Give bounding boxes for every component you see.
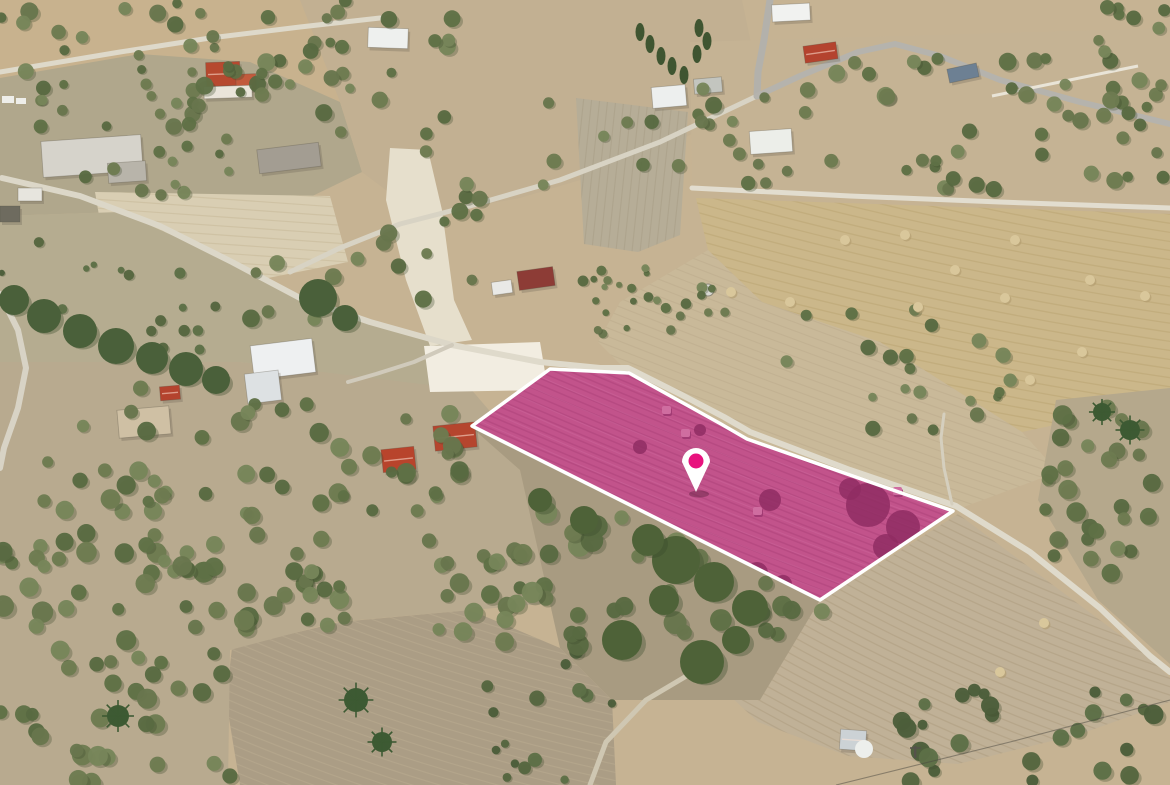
hay-bale [1140,291,1150,301]
olive-tree [704,308,712,316]
olive-tree [137,689,157,709]
olive-tree [213,665,230,682]
olive-tree [154,656,168,670]
olive-tree [681,298,692,309]
aerial-photo-container [0,0,1170,785]
olive-tree [865,421,880,436]
hay-bale [995,667,1005,677]
eucalyptus-tree [0,285,29,315]
olive-tree [801,310,812,321]
olive-tree [759,92,769,102]
olive-tree [1035,128,1048,141]
hay-bale [785,297,795,307]
olive-tree [320,618,335,633]
olive-tree [59,45,69,55]
olive-tree [236,87,246,97]
olive-tree [1114,499,1130,515]
olive-tree [196,77,214,95]
olive-tree [883,350,898,365]
olive-tree [720,308,729,317]
olive-tree [154,488,170,504]
olive-tree [955,688,970,703]
olive-tree [429,486,442,499]
olive-tree [1058,480,1077,499]
olive-tree [345,84,355,94]
olive-tree [372,92,388,108]
olive-tree [518,761,531,774]
olive-tree [312,494,329,511]
olive-tree [79,170,92,183]
olive-tree [450,461,468,479]
olive-tree [391,258,406,273]
olive-tree [277,587,293,603]
olive-tree [760,177,771,188]
olive-tree [131,651,145,665]
olive-tree [205,558,224,577]
olive-tree [442,448,454,460]
olive-tree [492,746,501,755]
olive-tree [208,602,225,619]
olive-tree [275,402,290,417]
olive-tree [234,610,254,630]
olive-tree [543,97,554,108]
hay-bale [840,235,850,245]
olive-tree [137,422,156,441]
olive-tree [118,2,131,15]
olive-tree [70,744,84,758]
olive-tree [697,291,706,300]
palm-tree [339,683,374,718]
olive-tree [868,393,877,402]
olive-tree [415,291,432,308]
aerial-photo [0,0,1170,785]
olive-tree [488,707,498,717]
olive-tree [666,325,675,334]
olive-tree [1140,508,1157,525]
olive-tree [102,121,112,131]
olive-tree [215,150,224,159]
olive-tree [848,56,861,69]
olive-tree [913,386,926,399]
olive-tree [928,424,939,435]
olive-tree [467,275,478,286]
olive-tree [171,180,180,189]
olive-tree [52,552,66,566]
olive-tree [256,68,267,79]
olive-tree [242,310,260,328]
olive-tree [561,659,571,669]
hay-bale [1025,375,1035,385]
olive-tree [411,504,424,517]
large-tree [632,524,664,556]
plot-bale [681,429,690,437]
olive-tree [77,420,89,432]
olive-tree [386,467,397,478]
olive-tree [174,268,185,279]
olive-tree [733,147,746,160]
olive-tree [1018,86,1034,102]
olive-tree [261,10,275,24]
olive-tree [158,555,171,568]
olive-tree [1089,687,1100,698]
olive-tree [313,531,329,547]
olive-tree [616,282,622,288]
olive-tree [192,99,206,113]
olive-tree [1053,729,1070,746]
olive-tree [753,159,764,170]
hay-bale [1077,347,1087,357]
olive-tree [172,556,192,576]
olive-tree [224,167,233,176]
olive-tree [207,756,222,771]
large-tree [570,506,598,534]
olive-tree [999,53,1017,71]
cypress-tree [703,32,712,50]
cypress-tree [636,23,645,41]
olive-tree [1081,439,1094,452]
olive-tree [433,623,445,635]
olive-tree [42,456,53,467]
olive-tree [193,683,211,701]
olive-tree [237,465,255,483]
olive-tree [879,89,895,105]
olive-tree [962,124,977,139]
olive-tree [472,191,488,207]
olive-tree [91,262,97,268]
olive-tree [91,709,110,728]
olive-tree [1083,551,1099,567]
olive-tree [255,87,270,102]
olive-tree [420,145,432,157]
olive-tree [986,181,1002,197]
olive-tree [310,423,329,442]
olive-tree [540,545,559,564]
olive-tree [275,480,290,495]
olive-tree [438,110,452,124]
olive-tree [29,618,44,633]
olive-tree [930,155,941,166]
olive-tree [1060,79,1071,90]
olive-tree [59,80,68,89]
olive-tree [972,333,987,348]
olive-tree [187,67,196,76]
olive-tree [441,556,455,570]
hay-bale [1085,275,1095,285]
building-white-flat-building [749,128,795,157]
cypress-tree [695,19,704,37]
olive-tree [303,587,319,603]
olive-tree [315,104,332,121]
olive-tree [179,325,190,336]
eucalyptus-tree [169,352,203,386]
olive-tree [31,727,49,745]
olive-tree [441,589,454,602]
olive-tree [333,580,345,592]
olive-tree [1093,35,1104,46]
olive-tree [16,16,30,30]
olive-tree [677,625,692,640]
olive-tree [727,116,738,127]
olive-tree [507,595,525,613]
olive-tree [155,109,165,119]
olive-tree [107,162,120,175]
olive-tree [969,177,985,193]
parked-vehicle [2,96,14,103]
olive-tree [560,776,568,784]
olive-tree [1096,108,1111,123]
olive-tree [1072,112,1088,128]
palm-tree [1116,416,1145,445]
olive-tree [572,626,585,639]
cypress-tree [657,47,666,65]
olive-tree [251,267,262,278]
olive-tree [501,740,509,748]
hay-bale [900,230,910,240]
building-white-canopy [18,188,44,204]
olive-tree [672,159,686,173]
olive-tree [1152,22,1165,35]
cypress-tree [668,57,677,75]
hay-bale [950,265,960,275]
olive-tree [341,459,357,475]
eucalyptus-tree [332,305,358,331]
building-two-storey-house [651,84,689,111]
olive-tree [723,134,736,147]
olive-tree [1155,79,1167,91]
olive-tree [137,65,146,74]
olive-tree [167,16,183,32]
olive-tree [381,11,398,28]
olive-tree [644,292,654,302]
olive-tree [695,115,708,128]
olive-tree [206,536,223,553]
olive-tree [210,302,220,312]
olive-tree [497,611,514,628]
olive-tree [57,105,68,116]
olive-tree [26,708,39,721]
olive-tree [1035,148,1049,162]
olive-tree [61,660,77,676]
olive-tree [83,265,89,271]
olive-tree [179,304,187,312]
olive-tree [290,547,304,561]
olive-tree [489,553,506,570]
olive-tree [141,79,152,90]
olive-tree [630,298,637,305]
olive-tree [1052,429,1069,446]
olive-tree [188,620,203,635]
olive-tree [800,82,816,98]
olive-tree [1133,449,1145,461]
olive-tree [37,494,50,507]
parked-vehicle [16,98,26,104]
olive-tree [155,189,166,200]
olive-tree [636,158,650,172]
olive-tree [118,267,125,274]
olive-tree [195,345,205,355]
olive-tree [101,489,121,509]
olive-tree [918,720,928,730]
olive-tree [594,326,602,334]
olive-tree [481,585,500,604]
building-white-containers [491,279,515,298]
olive-tree [1039,503,1051,515]
olive-tree [168,157,178,167]
olive-tree [1120,766,1139,785]
olive-tree [338,490,350,502]
olive-tree [705,97,722,114]
olive-tree [627,284,636,293]
olive-tree [1106,172,1123,189]
olive-tree [324,70,340,86]
olive-tree [268,74,282,88]
building-stone-house-red-roof [159,385,182,404]
olive-tree [146,91,156,101]
olive-tree [676,311,685,320]
olive-tree [845,307,857,319]
olive-tree [1052,533,1067,548]
plot-bale [662,406,671,414]
olive-tree [1088,523,1104,539]
olive-tree [932,53,944,65]
olive-tree [301,613,314,626]
olive-tree [241,405,256,420]
olive-tree [153,146,165,158]
olive-tree [397,463,416,482]
olive-tree [1132,72,1148,88]
olive-tree [741,176,755,190]
olive-tree [899,349,914,364]
eucalyptus-tree [63,314,97,348]
olive-tree [269,255,285,271]
olive-tree [243,507,260,524]
white-tarp [855,740,873,758]
olive-tree [1004,374,1017,387]
olive-tree [1157,171,1170,184]
olive-tree [697,83,710,96]
olive-tree [441,405,458,422]
olive-tree [624,325,630,331]
olive-tree [1122,172,1133,183]
olive-tree [981,696,999,714]
olive-tree [1118,512,1131,525]
olive-tree [547,154,562,169]
olive-tree [708,285,716,293]
olive-tree [183,39,197,53]
olive-tree [970,407,984,421]
olive-tree [249,527,265,543]
olive-tree [104,675,121,692]
olive-tree [1027,52,1043,68]
olive-tree [814,603,830,619]
olive-tree [56,501,74,519]
olive-tree [1093,762,1111,780]
olive-tree [71,585,87,601]
olive-tree [596,266,606,276]
olive-tree [133,381,148,396]
olive-tree [104,655,117,668]
olive-tree [149,5,166,22]
eucalyptus-tree [202,366,230,394]
olive-tree [138,537,154,553]
olive-tree [946,171,961,186]
olive-tree [1098,45,1111,58]
olive-tree [925,319,938,332]
olive-tree [135,184,149,198]
olive-tree [897,718,917,738]
olive-tree [58,600,75,617]
olive-tree [444,10,461,27]
olive-tree [824,154,838,168]
olive-tree [1101,451,1117,467]
olive-tree [1110,541,1125,556]
olive-tree [513,544,532,563]
olive-tree [182,141,193,152]
large-tree [732,590,768,626]
pin-shadow [689,490,709,497]
large-tree [694,562,734,602]
olive-tree [481,680,493,692]
olive-tree [919,748,938,767]
olive-tree [439,216,449,226]
olive-tree [171,98,182,109]
olive-tree [1122,106,1136,120]
olive-tree [916,154,929,167]
olive-tree [138,716,154,732]
olive-tree [195,8,206,19]
olive-tree [421,248,432,259]
olive-tree [112,603,124,615]
olive-tree [1041,466,1058,483]
building-white-house-b [772,3,813,25]
olive-tree [598,131,609,142]
olive-tree [338,612,351,625]
olive-tree [37,95,47,105]
olive-tree [259,467,275,483]
olive-tree [262,305,275,318]
olive-tree [36,81,51,96]
olive-tree [1084,166,1099,181]
olive-tree [460,177,474,191]
olive-tree [503,773,512,782]
olive-tree [199,487,213,501]
palm-tree [368,728,397,757]
olive-tree [1158,4,1170,16]
olive-tree [171,681,186,696]
eucalyptus-tree [27,299,61,333]
olive-tree [76,31,89,44]
olive-tree [1151,147,1162,158]
olive-tree [608,699,616,707]
olive-tree [1120,743,1133,756]
olive-tree [223,61,233,71]
olive-tree [965,396,975,406]
olive-tree [572,683,586,697]
olive-tree [1047,96,1062,111]
olive-tree [454,622,473,641]
olive-tree [221,134,232,145]
olive-tree [88,746,108,766]
olive-tree [661,303,671,313]
olive-tree [117,476,136,495]
olive-tree [180,600,193,613]
olive-tree [420,127,433,140]
olive-tree [781,355,793,367]
olive-tree [76,542,97,563]
olive-tree [72,473,87,488]
olive-tree [1006,82,1018,94]
olive-tree [335,126,347,138]
